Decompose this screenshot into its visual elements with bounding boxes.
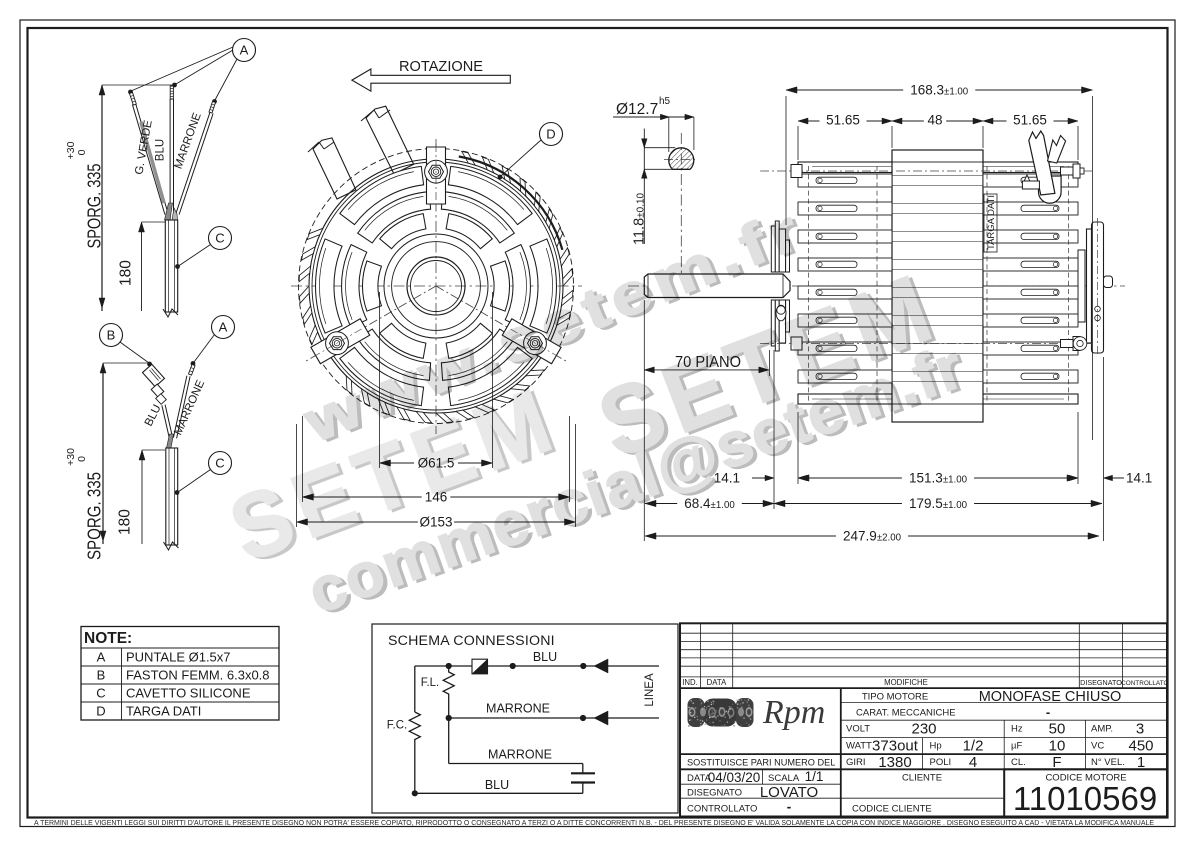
svg-text:14.1: 14.1 — [1126, 471, 1152, 486]
svg-text:F.L.: F.L. — [421, 677, 440, 689]
svg-text:-: - — [787, 800, 792, 815]
svg-text:NOTE:: NOTE: — [84, 630, 132, 647]
svg-text:LINEA: LINEA — [644, 673, 656, 707]
svg-text:DISEGNATO: DISEGNATO — [1080, 678, 1122, 687]
svg-text:MODIFICHE: MODIFICHE — [884, 678, 928, 687]
svg-text:CODICE CLIENTE: CODICE CLIENTE — [852, 803, 932, 814]
svg-text:-: - — [1046, 705, 1050, 720]
svg-text:C: C — [96, 686, 105, 701]
svg-text:04/03/20: 04/03/20 — [708, 770, 761, 785]
svg-text:BLU: BLU — [533, 650, 557, 664]
svg-text:TARGA DATI: TARGA DATI — [126, 704, 201, 719]
svg-text:180: 180 — [117, 509, 134, 535]
svg-text:LOVATO: LOVATO — [760, 784, 818, 801]
svg-text:373out: 373out — [872, 738, 919, 755]
svg-text:WATT: WATT — [846, 741, 872, 752]
svg-text:TARGA DATI: TARGA DATI — [986, 195, 997, 250]
svg-text:B: B — [107, 328, 116, 343]
svg-text:1/2: 1/2 — [963, 738, 984, 755]
svg-text:50: 50 — [1049, 721, 1066, 738]
svg-text:VC: VC — [1091, 741, 1104, 752]
svg-text:1: 1 — [1137, 754, 1145, 771]
svg-text:VOLT: VOLT — [846, 724, 870, 735]
svg-text:CLIENTE: CLIENTE — [902, 773, 942, 784]
svg-text:SPORG. 335: SPORG. 335 — [84, 164, 105, 249]
svg-text:IND.: IND. — [682, 678, 698, 687]
svg-text:Hp: Hp — [930, 741, 942, 752]
svg-text:230: 230 — [911, 721, 936, 738]
svg-text:CAVETTO SILICONE: CAVETTO SILICONE — [126, 686, 251, 701]
svg-text:CARAT. MECCANICHE: CARAT. MECCANICHE — [856, 708, 956, 719]
svg-text:Hz: Hz — [1011, 724, 1023, 735]
svg-text:AMP.: AMP. — [1091, 724, 1113, 735]
svg-text:51.65: 51.65 — [826, 113, 860, 128]
svg-text:11010569: 11010569 — [1013, 780, 1157, 817]
svg-text:4: 4 — [969, 754, 977, 771]
svg-text:BLU: BLU — [485, 778, 509, 792]
svg-text:0: 0 — [76, 456, 88, 462]
svg-text:GIRI: GIRI — [846, 757, 866, 768]
svg-text:A: A — [219, 320, 228, 335]
svg-text:µF: µF — [1011, 741, 1022, 752]
svg-text:SPORG. 335: SPORG. 335 — [84, 472, 105, 560]
svg-text:F: F — [1052, 754, 1061, 771]
svg-text:Ø12.7: Ø12.7 — [616, 101, 658, 118]
svg-text:h5: h5 — [659, 96, 671, 107]
svg-text:10: 10 — [1049, 738, 1066, 755]
svg-text:SOSTITUISCE PARI NUMERO DEL: SOSTITUISCE PARI NUMERO DEL — [687, 757, 835, 767]
svg-text:POLI: POLI — [930, 757, 952, 768]
svg-text:D: D — [96, 704, 105, 719]
svg-text:N° VEL.: N° VEL. — [1091, 757, 1125, 768]
svg-text:DISEGNATO: DISEGNATO — [687, 787, 742, 798]
svg-text:Rpm: Rpm — [762, 694, 825, 731]
svg-text:MARRONE: MARRONE — [488, 748, 552, 762]
svg-text:48: 48 — [927, 113, 942, 128]
svg-text:PUNTALE Ø1.5x7: PUNTALE Ø1.5x7 — [126, 650, 231, 665]
svg-text:180: 180 — [118, 260, 135, 286]
svg-text:C: C — [215, 456, 224, 471]
svg-text:450: 450 — [1128, 738, 1153, 755]
svg-text:0: 0 — [76, 149, 88, 155]
svg-text:D: D — [546, 127, 555, 142]
svg-text:BLU: BLU — [155, 139, 167, 161]
svg-text:F.C.: F.C. — [387, 720, 407, 732]
svg-text:ROTAZIONE: ROTAZIONE — [399, 58, 483, 75]
svg-text:DATA: DATA — [707, 678, 727, 687]
svg-text:3: 3 — [1136, 721, 1144, 738]
svg-text:1380: 1380 — [878, 754, 911, 771]
svg-text:MARRONE: MARRONE — [486, 702, 550, 716]
svg-text:51.65: 51.65 — [1013, 113, 1047, 128]
svg-text:MONOFASE CHIUSO: MONOFASE CHIUSO — [979, 689, 1122, 705]
svg-text:C: C — [215, 231, 224, 246]
svg-text:TIPO MOTORE: TIPO MOTORE — [862, 692, 928, 703]
svg-text:CL.: CL. — [1011, 757, 1026, 768]
svg-text:A TERMINI DELLE VIGENTI LEGGI: A TERMINI DELLE VIGENTI LEGGI SUI DIRITT… — [34, 818, 1154, 827]
svg-text:FASTON FEMM. 6.3x0.8: FASTON FEMM. 6.3x0.8 — [126, 668, 270, 683]
svg-text:CONTROLLATO: CONTROLLATO — [687, 803, 757, 814]
svg-text:B: B — [97, 668, 106, 683]
svg-text:A: A — [240, 43, 249, 58]
svg-text:A: A — [97, 650, 106, 665]
svg-text:SCALA: SCALA — [768, 773, 800, 784]
svg-text:CONTROLLATO: CONTROLLATO — [1121, 680, 1168, 687]
svg-text:1/1: 1/1 — [805, 769, 824, 784]
svg-text:SCHEMA CONNESSIONI: SCHEMA CONNESSIONI — [388, 633, 555, 649]
